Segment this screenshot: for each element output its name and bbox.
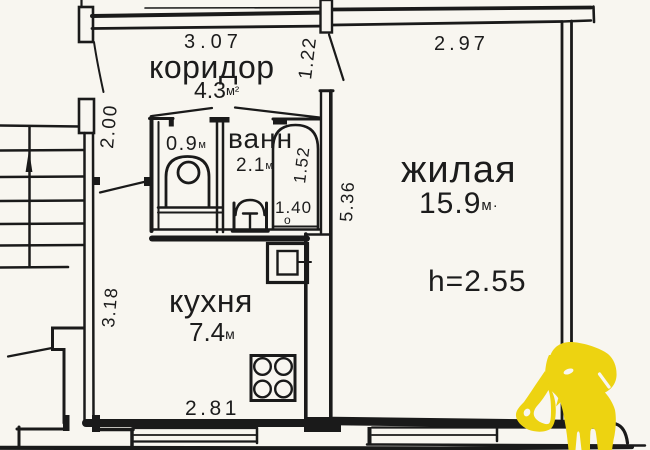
svg-text:5.36: 5.36: [336, 180, 358, 222]
svg-text:1.40: 1.40: [275, 198, 312, 217]
svg-text:3.18: 3.18: [98, 286, 122, 329]
svg-text:2.00: 2.00: [97, 103, 122, 150]
svg-text:o: o: [284, 213, 291, 227]
svg-text:2.81: 2.81: [185, 397, 240, 420]
svg-text:2.97: 2.97: [434, 33, 489, 55]
svg-text:ванн: ванн: [228, 123, 293, 154]
svg-text:кухня: кухня: [169, 283, 253, 319]
svg-text:h=2.55: h=2.55: [428, 265, 527, 298]
svg-text:жилая: жилая: [401, 149, 517, 191]
